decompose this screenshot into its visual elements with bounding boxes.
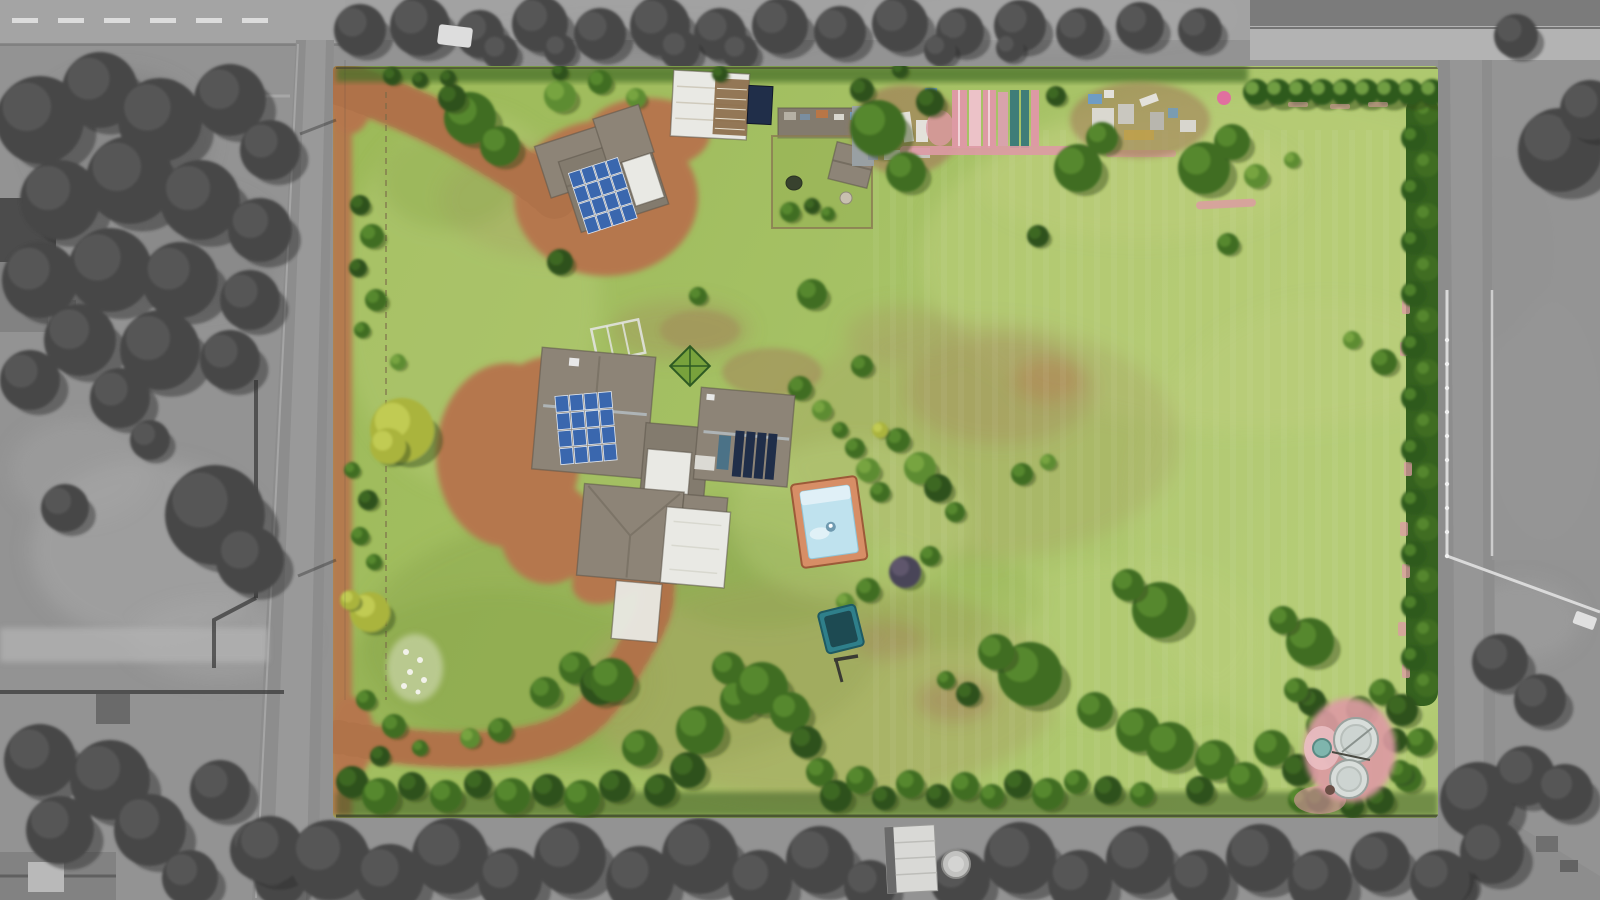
- dirt-ne-of-house: [660, 310, 740, 350]
- hedge-bump-hl: [1404, 232, 1416, 244]
- hedge-bump-hl: [1404, 596, 1416, 608]
- tree-highlight: [1293, 855, 1328, 890]
- house-white-ne: [694, 455, 715, 471]
- hedge-bump-hl: [1417, 414, 1429, 426]
- tree-highlight: [413, 73, 422, 82]
- hedge-cone-tip: [1290, 82, 1303, 95]
- hedge-bump-hl: [1417, 518, 1429, 530]
- tree-highlight: [1497, 17, 1521, 41]
- tree-highlight: [124, 84, 170, 130]
- tree-highlight: [490, 720, 503, 733]
- tree-highlight: [898, 772, 913, 787]
- hedge-bump-hl: [1417, 258, 1429, 270]
- hedge-bump-hl: [1417, 206, 1429, 218]
- solar-panel: [569, 394, 583, 411]
- hedge-cone-tip: [1246, 82, 1259, 95]
- solar-panel: [572, 429, 586, 446]
- tree-highlight: [1175, 855, 1208, 888]
- road-top-left: [0, 0, 345, 46]
- tree-highlight: [792, 728, 810, 746]
- road-dash: [12, 18, 38, 23]
- tree-highlight: [1518, 678, 1547, 707]
- hedge-bump-hl: [1417, 362, 1429, 374]
- tree-highlight: [998, 4, 1027, 33]
- hedge-bump-hl: [1404, 128, 1416, 140]
- tree-highlight: [940, 12, 966, 38]
- tree-highlight: [876, 0, 907, 31]
- tree-highlight: [1066, 772, 1079, 785]
- pink-flower-spot: [1217, 91, 1231, 105]
- tree-highlight: [516, 0, 547, 31]
- tree-highlight: [733, 855, 768, 890]
- hedge-cone-tip: [1334, 82, 1347, 95]
- tree-highlight: [1111, 831, 1148, 868]
- tree-highlight: [926, 476, 941, 491]
- tree-highlight: [1181, 11, 1205, 35]
- solar-panel: [585, 410, 599, 427]
- tree-highlight: [1446, 768, 1488, 810]
- tree-highlight: [1188, 778, 1203, 793]
- fence-post: [1445, 362, 1449, 366]
- hedge-bump-hl: [1417, 154, 1429, 166]
- tree-highlight: [1355, 837, 1388, 870]
- tree-highlight: [1271, 608, 1286, 623]
- tree-highlight: [567, 783, 587, 803]
- solar-panel: [598, 392, 612, 409]
- neighbor-shed: [884, 825, 937, 894]
- solar-array-ground: [747, 85, 773, 124]
- tree-highlight: [296, 826, 340, 870]
- tree-highlight: [1371, 681, 1385, 695]
- tree-highlight: [1150, 726, 1176, 752]
- tree-highlight: [1257, 733, 1277, 753]
- solar-panel: [603, 444, 617, 461]
- tree-highlight: [782, 204, 793, 215]
- fence-post: [1445, 458, 1449, 462]
- tree-highlight: [922, 548, 933, 559]
- tree-highlight: [546, 82, 564, 100]
- tree-highlight: [891, 558, 909, 576]
- tree-highlight: [497, 781, 517, 801]
- tree-highlight: [93, 143, 141, 191]
- road-dash: [196, 18, 222, 23]
- road-dash: [242, 18, 268, 23]
- tree-highlight: [926, 36, 944, 54]
- solar-panel: [574, 446, 588, 463]
- tree-highlight: [355, 323, 364, 332]
- tree-highlight: [483, 853, 518, 888]
- tree-highlight: [1500, 751, 1533, 784]
- tree-highlight: [1114, 571, 1132, 589]
- tree-highlight: [553, 65, 562, 74]
- stone-circle: [840, 192, 852, 204]
- tree-highlight: [74, 234, 120, 280]
- pink-walk-dash: [1404, 462, 1412, 476]
- hedge-cone-tip: [1356, 82, 1369, 95]
- solar-panel: [556, 413, 570, 430]
- tree-highlight: [1096, 778, 1111, 793]
- tree-highlight: [373, 431, 393, 451]
- solar-panel: [600, 409, 614, 426]
- tree-highlight: [173, 473, 228, 528]
- pink-walk-dash: [1400, 522, 1408, 536]
- tree-highlight: [848, 768, 863, 783]
- tree-highlight: [725, 37, 745, 57]
- tree-highlight: [400, 774, 415, 789]
- tree-highlight: [799, 281, 816, 298]
- tree-highlight: [76, 746, 120, 790]
- tree-highlight: [133, 423, 155, 445]
- hedge-cone-tip: [1268, 82, 1281, 95]
- tree-highlight: [441, 71, 450, 80]
- tree-highlight: [372, 748, 383, 759]
- tree-highlight: [225, 275, 258, 308]
- tree-highlight: [1231, 829, 1268, 866]
- tree-highlight: [1286, 680, 1299, 693]
- tree-highlight: [998, 36, 1013, 51]
- tree-highlight: [790, 378, 803, 391]
- tree-highlight: [814, 402, 825, 413]
- tree-highlight: [858, 580, 871, 593]
- solar-panel: [571, 411, 585, 428]
- tree-highlight: [590, 72, 603, 85]
- property-lot: [328, 62, 1580, 820]
- tree-highlight: [549, 251, 563, 265]
- solar-panel: [584, 393, 598, 410]
- tree-highlight: [1053, 855, 1088, 890]
- tree-highlight: [1415, 855, 1448, 888]
- tree-highlight: [358, 692, 369, 703]
- tree-highlight: [1565, 85, 1598, 118]
- swimming-pool: [791, 476, 868, 568]
- tree-highlight: [1541, 768, 1572, 799]
- tree-highlight: [854, 104, 885, 135]
- tree-highlight: [546, 36, 564, 54]
- pink-dash: [1368, 102, 1388, 107]
- fence-post: [1445, 482, 1449, 486]
- tree-highlight: [646, 776, 664, 794]
- tree-highlight: [578, 12, 607, 41]
- tree-highlight: [611, 851, 648, 888]
- tree-highlight: [1373, 351, 1387, 365]
- tree-highlight: [350, 260, 360, 270]
- tree-highlight: [808, 760, 823, 775]
- hedge-bump-hl: [1404, 336, 1416, 348]
- tree-highlight: [233, 203, 268, 238]
- tree-highlight: [918, 90, 933, 105]
- chimney: [706, 394, 714, 401]
- lumber-stack: [712, 78, 749, 136]
- tree-highlight: [1132, 784, 1145, 797]
- tree-highlight: [119, 799, 159, 839]
- solar-panel: [560, 448, 574, 465]
- tree-highlight: [628, 90, 639, 101]
- tree-highlight: [3, 83, 51, 131]
- tree-highlight: [148, 248, 190, 290]
- hedge-bump-hl: [1417, 466, 1429, 478]
- tree-highlight: [1217, 127, 1237, 147]
- tree-highlight: [680, 710, 706, 736]
- tree-highlight: [889, 155, 911, 177]
- chimney: [569, 358, 580, 367]
- tree-highlight: [690, 288, 700, 298]
- tree-highlight: [1476, 638, 1507, 669]
- solar-panel: [555, 395, 569, 412]
- tree-highlight: [1006, 772, 1021, 787]
- tree-highlight: [1465, 825, 1500, 860]
- tree-highlight: [466, 772, 481, 787]
- hedge-bump-hl: [1404, 284, 1416, 296]
- tree-highlight: [166, 166, 210, 210]
- tree-highlight: [367, 555, 376, 564]
- shade-beds-teal: [1010, 90, 1019, 148]
- tree-highlight: [485, 37, 505, 57]
- tree-highlight: [166, 854, 197, 885]
- hedge-bump-hl: [1417, 622, 1429, 634]
- fence-post: [1445, 338, 1449, 342]
- hedge-bump-hl: [1404, 648, 1416, 660]
- hedge-bump-hl: [1404, 180, 1416, 192]
- tree-highlight: [95, 373, 128, 406]
- tree-highlight: [384, 716, 397, 729]
- tree-highlight: [338, 768, 356, 786]
- hedge-bump-hl: [1417, 570, 1429, 582]
- tree-highlight: [338, 8, 367, 37]
- hedge-bump-hl: [1404, 440, 1416, 452]
- tree-highlight: [625, 733, 645, 753]
- tree-highlight: [593, 661, 617, 685]
- tree-highlight: [199, 69, 239, 109]
- aerial-photo-canvas: [0, 0, 1600, 900]
- tree-highlight: [848, 864, 877, 893]
- tree-highlight: [1198, 743, 1220, 765]
- tree-highlight: [342, 592, 353, 603]
- tree-highlight: [31, 801, 68, 838]
- tree-highlight: [1408, 730, 1423, 745]
- tree-highlight: [805, 199, 814, 208]
- fence-post: [1445, 410, 1449, 414]
- aerial-photo: [0, 0, 1600, 900]
- neighbor-structure: [1560, 860, 1578, 872]
- tree-highlight: [1013, 465, 1025, 477]
- tree-highlight: [49, 309, 89, 349]
- tree-highlight: [8, 248, 50, 290]
- tree-highlight: [818, 10, 847, 39]
- tree-highlight: [1388, 696, 1406, 714]
- tree-highlight: [668, 824, 710, 866]
- hedge-bump-hl: [1404, 388, 1416, 400]
- tree-highlight: [418, 824, 460, 866]
- fence-post: [1445, 506, 1449, 510]
- tree-highlight: [663, 33, 685, 55]
- tree-highlight: [1285, 153, 1294, 162]
- tree-highlight: [837, 594, 847, 604]
- tree-highlight: [873, 423, 882, 432]
- tree-highlight: [440, 86, 455, 101]
- solar-panel: [558, 430, 572, 447]
- tree-highlight: [928, 786, 941, 799]
- tree-highlight: [532, 679, 549, 696]
- pink-dash: [1288, 102, 1308, 107]
- tree-highlight: [5, 355, 38, 388]
- hedge-bump-hl: [1417, 310, 1429, 322]
- neighbor-structure: [1536, 836, 1558, 852]
- shade-beds-teal: [1021, 90, 1029, 148]
- tree-highlight: [1284, 756, 1302, 774]
- solar-panel: [587, 428, 601, 445]
- tree-highlight: [367, 291, 379, 303]
- road-dash: [150, 18, 176, 23]
- tree-highlight: [352, 197, 363, 208]
- hedge-cone-tip: [1400, 82, 1413, 95]
- tree-highlight: [713, 67, 722, 76]
- pond: [786, 176, 802, 190]
- neighbor-driveway: [0, 628, 268, 662]
- tree-highlight: [413, 741, 422, 750]
- pink-dash: [1330, 104, 1350, 109]
- tree-highlight: [1344, 332, 1354, 342]
- tree-highlight: [195, 765, 228, 798]
- tree-highlight: [1182, 146, 1211, 175]
- tree-highlight: [45, 488, 71, 514]
- tree-highlight: [853, 357, 865, 369]
- house-white-garage: [611, 581, 662, 643]
- tree-highlight: [483, 129, 505, 151]
- tree-highlight: [1034, 780, 1052, 798]
- fence-post: [1445, 386, 1449, 390]
- tree-highlight: [534, 776, 552, 794]
- fence-post: [1445, 530, 1449, 534]
- tree-highlight: [847, 440, 858, 451]
- tree-highlight: [822, 208, 830, 216]
- road-dash: [104, 18, 130, 23]
- hedge-bump-hl: [1417, 674, 1429, 686]
- tree-highlight: [982, 786, 995, 799]
- tree-highlight: [391, 355, 400, 364]
- tree-highlight: [245, 125, 278, 158]
- hedge-bump-hl: [1404, 544, 1416, 556]
- tree-highlight: [539, 827, 579, 867]
- tree-highlight: [773, 695, 795, 717]
- pink-walk-dash: [1398, 622, 1406, 636]
- tree-highlight: [1080, 695, 1100, 715]
- tree-highlight: [833, 423, 842, 432]
- tree-highlight: [740, 666, 769, 695]
- white-vehicle: [437, 24, 473, 48]
- hedge-bump-hl: [1404, 492, 1416, 504]
- tree-highlight: [362, 226, 375, 239]
- tree-highlight: [1219, 235, 1231, 247]
- tree-highlight: [981, 637, 1001, 657]
- hedge-cone-tip: [1378, 82, 1391, 95]
- tree-highlight: [1119, 711, 1143, 735]
- tree-highlight: [1041, 455, 1050, 464]
- tree-highlight: [872, 484, 883, 495]
- tree-highlight: [561, 654, 579, 672]
- tree-highlight: [938, 672, 948, 682]
- tree-highlight: [1048, 88, 1059, 99]
- tree-highlight: [822, 782, 840, 800]
- tree-highlight: [756, 2, 787, 33]
- tree-highlight: [26, 166, 70, 210]
- tree-highlight: [874, 788, 887, 801]
- neighbor-shed-small: [96, 694, 130, 724]
- solar-panel: [588, 445, 602, 462]
- tree-highlight: [601, 772, 619, 790]
- tree-highlight: [68, 58, 110, 100]
- fence-post: [1445, 434, 1449, 438]
- neighbor-tank-top: [948, 856, 964, 872]
- tree-highlight: [1120, 6, 1146, 32]
- tree-highlight: [1230, 765, 1250, 785]
- tree-highlight: [9, 729, 49, 769]
- tree-highlight: [858, 460, 871, 473]
- tree-highlight: [205, 335, 238, 368]
- tree-highlight: [947, 504, 958, 515]
- tree-highlight: [698, 12, 727, 41]
- tree-highlight: [791, 831, 828, 868]
- tree-highlight: [352, 528, 362, 538]
- tree-highlight: [126, 316, 170, 360]
- tree-highlight: [395, 1, 428, 34]
- solar-panel: [601, 426, 615, 443]
- road-dash: [58, 18, 84, 23]
- tree-highlight: [384, 68, 394, 78]
- tree-highlight: [635, 1, 668, 34]
- tree-highlight: [365, 781, 385, 801]
- tree-highlight: [958, 684, 971, 697]
- tree-highlight: [1058, 148, 1084, 174]
- storage-shed-white: [670, 70, 749, 140]
- tree-highlight: [953, 774, 968, 789]
- tree-highlight: [241, 821, 278, 858]
- hedge-cone-tip: [1422, 82, 1435, 95]
- tree-highlight: [989, 827, 1029, 867]
- tree-highlight: [221, 531, 258, 568]
- tree-highlight: [673, 755, 693, 775]
- fence-post: [1445, 554, 1449, 558]
- tree-highlight: [462, 730, 473, 741]
- tree-highlight: [361, 849, 398, 886]
- tree-highlight: [345, 463, 354, 472]
- tree-highlight: [714, 654, 732, 672]
- tree-highlight: [1246, 166, 1259, 179]
- tree-highlight: [432, 782, 450, 800]
- tree-highlight: [1088, 124, 1106, 142]
- pink-walk-dash: [1402, 564, 1410, 578]
- tree-highlight: [906, 454, 924, 472]
- hedge-cone-tip: [1312, 82, 1325, 95]
- tree-highlight: [852, 80, 865, 93]
- flower-bed-white: [387, 634, 443, 702]
- spa-tub: [1313, 739, 1331, 757]
- tree-highlight: [1060, 12, 1086, 38]
- tree-highlight: [1029, 227, 1041, 239]
- tree-highlight: [360, 492, 371, 503]
